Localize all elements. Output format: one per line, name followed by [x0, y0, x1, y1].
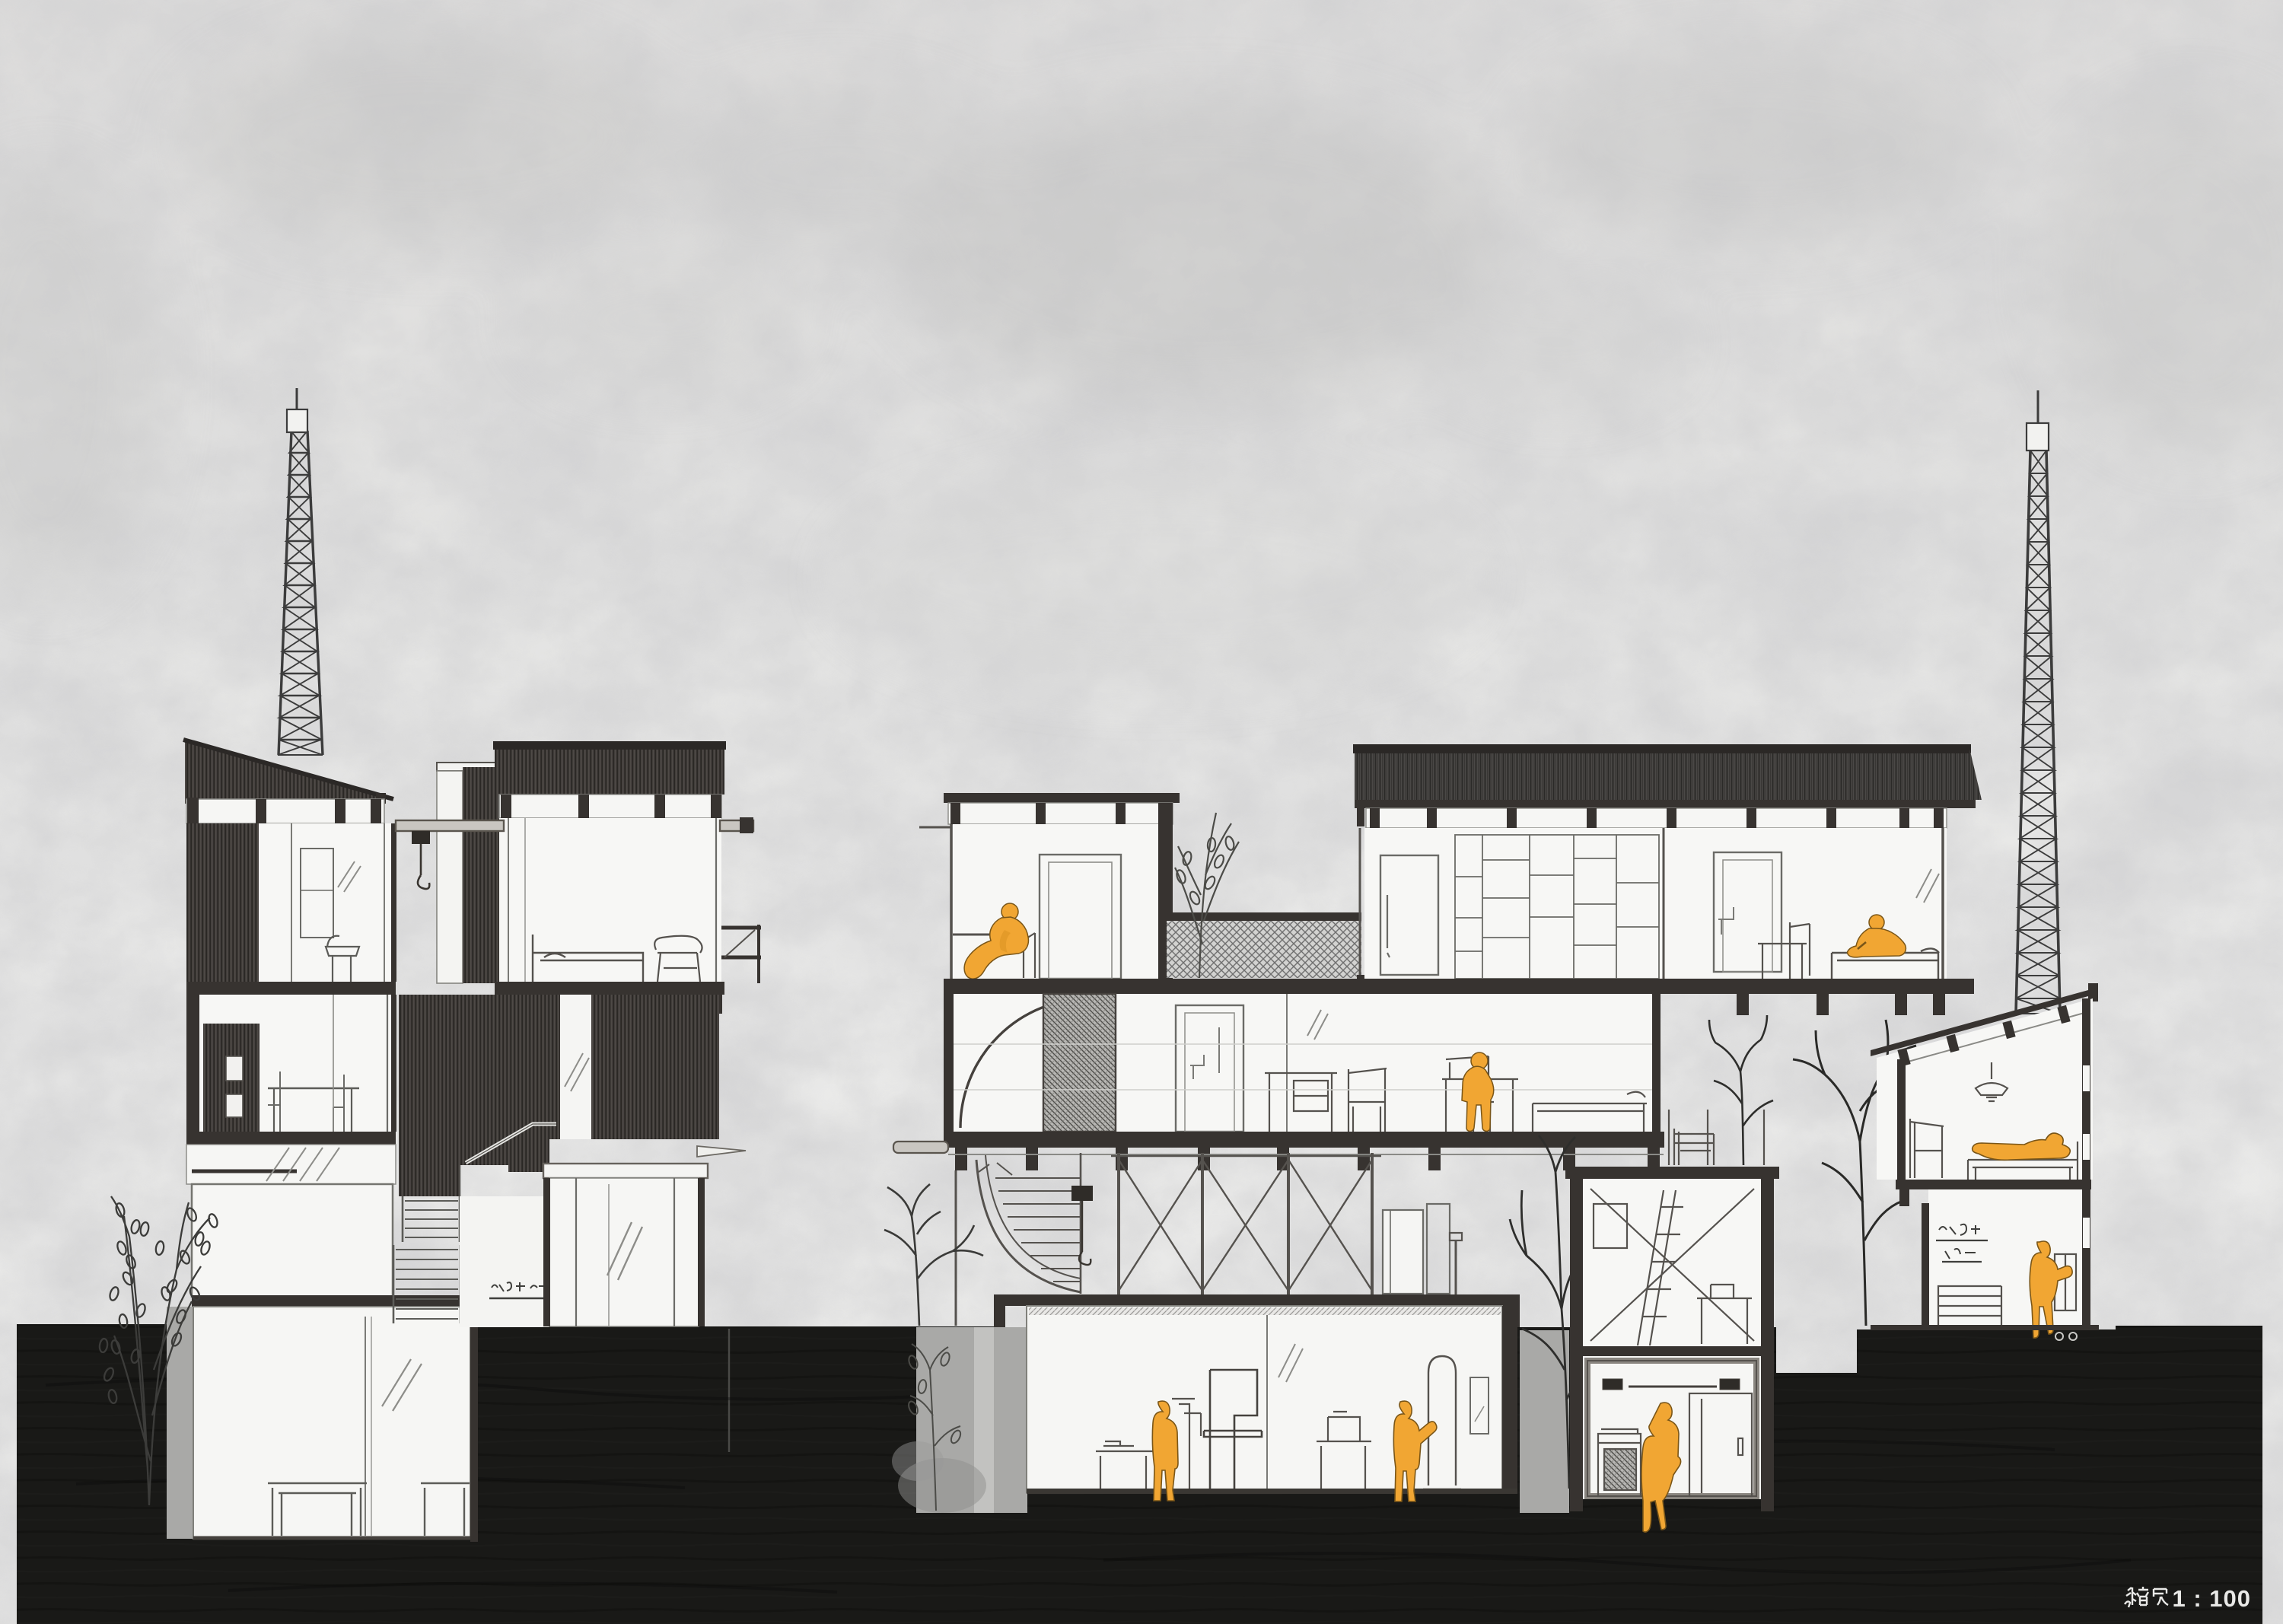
svg-text:1 : 100: 1 : 100	[2172, 1585, 2251, 1612]
